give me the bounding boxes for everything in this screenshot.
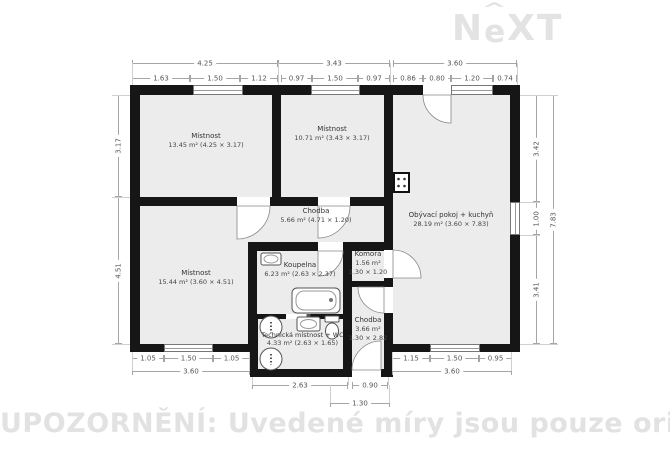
dim-label: 2.63 <box>289 382 311 389</box>
dim-label: 4.51 <box>115 260 122 282</box>
dim-label: 3.17 <box>115 135 122 157</box>
door-opening-entrance <box>423 85 451 95</box>
room-name: Místnost <box>146 132 266 141</box>
room-name: Technická místnost + WC <box>255 331 350 339</box>
label-hallway: Chodba 5.66 m² (4.71 × 1.20) <box>256 207 376 225</box>
dim-label: 0.97 <box>363 75 385 82</box>
dim-label: 3.43 <box>323 60 345 67</box>
window-top-left <box>193 85 243 95</box>
window-top-right <box>451 85 493 95</box>
room-detail: 6.23 m² (2.63 × 2.37) <box>258 270 342 278</box>
dim-label: 3.60 <box>441 368 463 375</box>
ext-line <box>112 95 130 96</box>
room-size: 1.30 × 2.82 <box>346 334 390 342</box>
ext-line <box>348 377 349 385</box>
dim-right-3: 3.41 <box>536 235 537 344</box>
dim-top-total-3: 3.60 <box>393 63 517 64</box>
dim-label: 3.42 <box>533 138 540 160</box>
logo-letters-xt: XT <box>507 8 563 49</box>
dim-top-sub-2: 1.50 <box>190 78 240 79</box>
dim-bl-3: 1.05 <box>213 358 250 359</box>
dim-right-1: 3.42 <box>536 95 537 202</box>
door-opening-hall2 <box>384 287 393 313</box>
room-detail: 4.33 m² (2.63 × 1.65) <box>255 339 350 347</box>
dim-label: 1.50 <box>204 75 226 82</box>
dim-label: 1.50 <box>178 355 200 362</box>
room-top-middle <box>281 95 384 197</box>
dim-label: 0.90 <box>359 382 381 389</box>
dim-bl-2: 1.50 <box>164 358 213 359</box>
ext-line <box>390 63 391 85</box>
dim-br-total: 3.60 <box>392 371 512 372</box>
dim-label: 1.20 <box>461 75 483 82</box>
room-name: Obývací pokoj + kuchyň <box>396 211 506 220</box>
room-name: Místnost <box>144 269 248 278</box>
room-detail: 15.44 m² (3.60 × 4.51) <box>144 278 248 286</box>
ext-line <box>520 95 558 96</box>
dim-label: 1.30 <box>349 400 371 407</box>
dim-label: 1.63 <box>150 75 172 82</box>
dim-top-sub-3: 1.12 <box>240 78 278 79</box>
label-room-bottom-left: Místnost 15.44 m² (3.60 × 4.51) <box>144 269 248 287</box>
room-detail: 5.66 m² (4.71 × 1.20) <box>256 216 376 224</box>
ext-line <box>252 377 253 385</box>
ext-line <box>112 344 130 345</box>
dim-bc-2: 0.90 <box>352 385 388 386</box>
ext-line <box>520 235 540 236</box>
room-name: Chodba <box>256 207 376 216</box>
dim-label: 7.83 <box>550 209 557 231</box>
ext-line <box>249 352 250 371</box>
label-room-living: Obývací pokoj + kuchyň 28.19 m² (3.60 × … <box>396 211 506 229</box>
ext-line <box>132 63 133 85</box>
label-room-top-left: Místnost 13.45 m² (4.25 × 3.17) <box>146 132 266 150</box>
dim-label: 0.74 <box>494 75 516 82</box>
door-opening-r1 <box>237 197 270 206</box>
room-detail: 10.71 m² (3.43 × 3.17) <box>277 134 387 142</box>
logo-letter-e: e ^ <box>484 14 507 50</box>
ext-line <box>278 63 279 85</box>
dim-top-sub-4: 0.97 <box>281 78 312 79</box>
room-area: 1.56 m² <box>344 259 392 267</box>
dim-bc-3: 1.30 <box>330 403 390 404</box>
dim-top-sub-10: 0.74 <box>493 78 517 79</box>
dim-label: 1.05 <box>137 355 159 362</box>
room-detail: 13.45 m² (4.25 × 3.17) <box>146 141 266 149</box>
door-opening-r2 <box>318 197 350 206</box>
dim-br-3: 0.95 <box>479 358 512 359</box>
dim-top-sub-6: 0.97 <box>358 78 390 79</box>
ext-line <box>517 63 518 85</box>
label-hallway2: Chodba 3.66 m² 1.30 × 2.82 <box>346 316 390 342</box>
room-name: Koupelna <box>258 261 342 270</box>
dim-right-2: 1.00 <box>536 202 537 235</box>
dim-label: 1.05 <box>221 355 243 362</box>
dim-br-2: 1.50 <box>430 358 479 359</box>
dim-label: 1.15 <box>400 355 422 362</box>
dim-label: 1.12 <box>248 75 270 82</box>
dim-label: 3.41 <box>533 279 540 301</box>
dim-bc-1: 2.63 <box>252 385 348 386</box>
ext-line <box>520 344 558 345</box>
label-pantry: Komora 1.56 m² 1.30 × 1.20 <box>344 250 392 276</box>
dim-label: 0.95 <box>485 355 507 362</box>
room-size: 1.30 × 1.20 <box>344 268 392 276</box>
dim-bl-1: 1.05 <box>132 358 164 359</box>
ext-line <box>330 385 331 403</box>
ext-line <box>389 385 390 403</box>
dim-top-sub-1: 1.63 <box>132 78 190 79</box>
room-detail: 28.19 m² (3.60 × 7.83) <box>396 220 506 228</box>
room-name: Místnost <box>277 125 387 134</box>
dim-bl-total: 3.60 <box>132 371 250 372</box>
window-top-middle <box>311 85 360 95</box>
watermark-text: UPOZORNĚNÍ: Uvedené míry jsou pouze orie… <box>0 408 670 439</box>
room-name: Komora <box>344 250 392 259</box>
dim-left-1: 3.17 <box>118 95 119 197</box>
door-opening-exit <box>352 369 381 377</box>
ext-line <box>388 377 389 385</box>
logo-caret-icon: ^ <box>481 1 510 19</box>
dim-left-2: 4.51 <box>118 197 119 344</box>
dim-right-total: 7.83 <box>553 95 554 344</box>
label-bathroom: Koupelna 6.23 m² (2.63 × 2.37) <box>258 261 342 279</box>
floorplan-canvas: UPOZORNĚNÍ: Uvedené míry jsou pouze orie… <box>0 0 670 455</box>
window-right-wall <box>510 202 520 235</box>
dim-label: 0.86 <box>397 75 419 82</box>
ext-line <box>511 352 512 371</box>
room-area: 3.66 m² <box>346 325 390 333</box>
dim-label: 0.97 <box>286 75 308 82</box>
ext-line <box>132 352 133 371</box>
dim-top-sub-9: 1.20 <box>451 78 493 79</box>
dim-top-sub-5: 1.50 <box>312 78 358 79</box>
dim-label: 4.25 <box>194 60 216 67</box>
next-logo: N e ^ XT <box>452 8 563 50</box>
ext-line <box>392 352 393 371</box>
label-room-top-middle: Místnost 10.71 m² (3.43 × 3.17) <box>277 125 387 143</box>
door-opening-tech <box>286 314 310 319</box>
room-name: Chodba <box>346 316 390 325</box>
ext-line <box>520 202 540 203</box>
dim-top-sub-8: 0.80 <box>423 78 451 79</box>
ext-line <box>112 197 130 198</box>
window-bottom-right <box>430 344 480 352</box>
window-bottom-left <box>164 344 213 352</box>
dim-label: 1.50 <box>444 355 466 362</box>
dim-top-total-1: 4.25 <box>132 63 278 64</box>
dim-top-sub-7: 0.86 <box>393 78 423 79</box>
label-tech: Technická místnost + WC 4.33 m² (2.63 × … <box>255 331 350 348</box>
dim-label: 0.80 <box>426 75 448 82</box>
dim-br-1: 1.15 <box>392 358 430 359</box>
dim-label: 3.60 <box>444 60 466 67</box>
logo-letter-n: N <box>452 8 484 49</box>
door-opening-bath <box>318 242 343 251</box>
dim-label: 3.60 <box>180 368 202 375</box>
dim-label: 1.00 <box>533 208 540 230</box>
dim-label: 1.50 <box>324 75 346 82</box>
dim-top-total-2: 3.43 <box>278 63 390 64</box>
